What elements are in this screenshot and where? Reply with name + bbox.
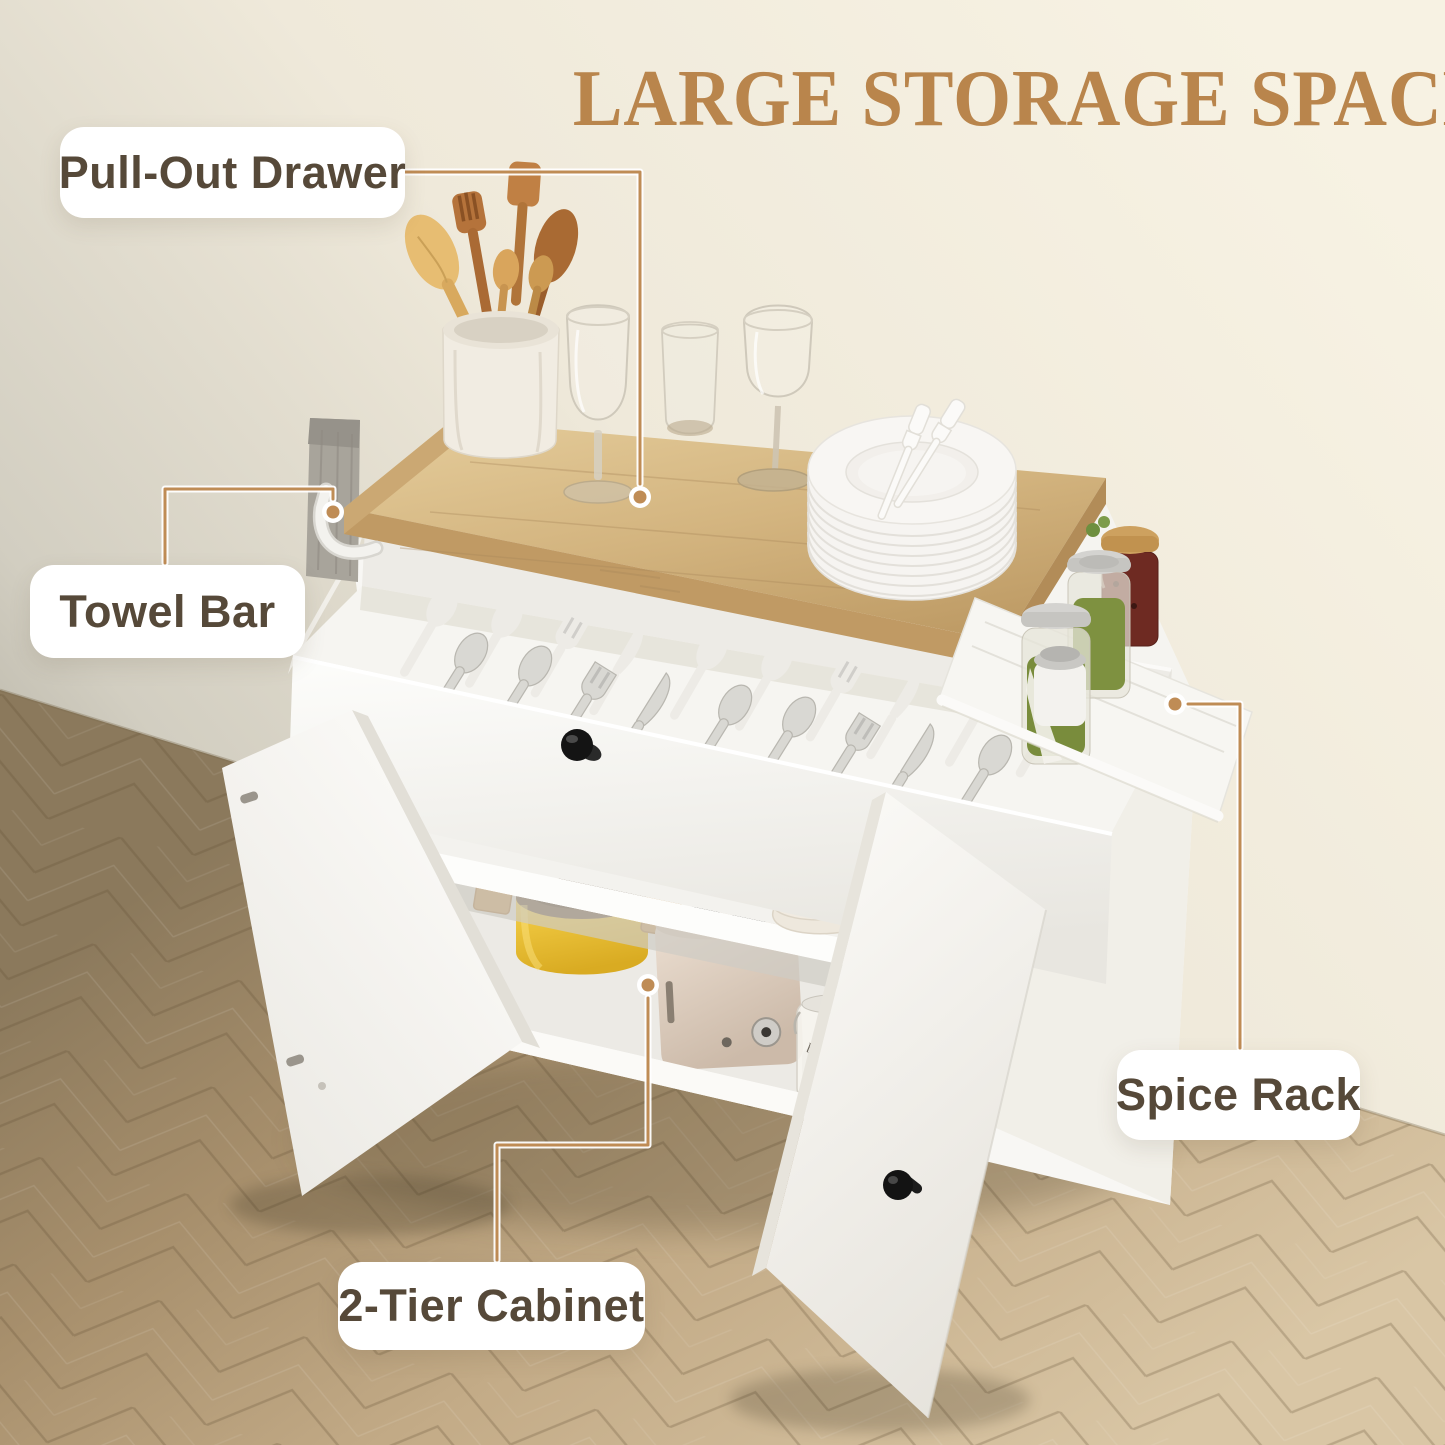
utensil-crock xyxy=(443,311,559,458)
label-two-tier-cabinet: 2-Tier Cabinet xyxy=(338,1262,645,1350)
label-towel-bar: Towel Bar xyxy=(30,565,305,658)
page-title: LARGE STORAGE SPACE xyxy=(638,56,1429,142)
salt-shaker xyxy=(1034,646,1086,726)
small-glass xyxy=(662,322,718,436)
product-infographic: flour baking soda xyxy=(0,0,1445,1445)
label-pull-out-drawer: Pull-Out Drawer xyxy=(60,127,405,218)
label-spice-rack: Spice Rack xyxy=(1117,1050,1360,1140)
